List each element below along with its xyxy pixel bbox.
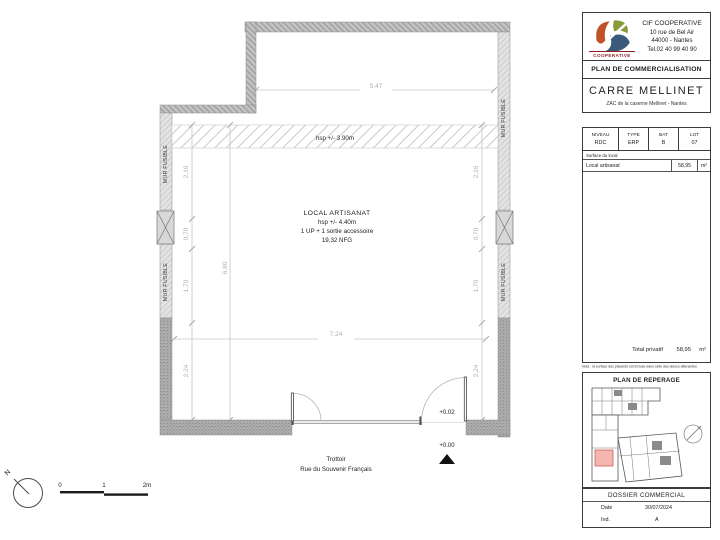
company-address-2: 44000 - Nantes (635, 37, 709, 46)
project-name: CARRE MELLINET (583, 85, 710, 97)
key-plan-highlight (595, 450, 613, 466)
logo-caption: COOPERATIVE (589, 51, 635, 58)
location-plan-title: PLAN DE REPERAGE (583, 377, 710, 384)
dim-left-2: 0,70 (183, 227, 190, 240)
total-row: Total privatif 58,95 m² (583, 347, 710, 357)
niveau-value: RDC (595, 140, 607, 146)
scale-0: 0 (58, 482, 62, 489)
wall-left-lower (160, 318, 172, 420)
company-phone: Tel.02 40 99 40 90 (635, 46, 709, 55)
level-outside: +0.00 (439, 443, 455, 449)
surface-row-value: 58,95 (671, 160, 698, 171)
wall-top (245, 22, 510, 32)
level-inside: +0.02 (439, 410, 455, 416)
total-unit: m² (699, 347, 706, 353)
cell-niveau: NIVEAU RDC (583, 128, 619, 150)
surface-note: Nota : la surface des placards est inclu… (582, 365, 698, 368)
mur-fusible-label-right-top: MUR FUSIBLE (501, 99, 507, 137)
project-section: CARRE MELLINET ZAC de la caserne Melline… (583, 85, 710, 107)
cell-type: TYPE ERP (619, 128, 649, 150)
dim-left-4: 2,24 (183, 364, 190, 377)
bat-value: B (662, 140, 666, 146)
key-plan-north-icon (684, 425, 702, 443)
floor-plan-drawing: hsp +/- 3.90m 2,16 0,70 1,70 2,24 2,16 (0, 0, 578, 540)
mur-fusible-label-left-top: MUR FUSIBLE (163, 145, 169, 183)
wall-bottom-right (466, 420, 510, 435)
wall-right-lower (498, 318, 510, 437)
dim-right-3: 1,70 (473, 279, 480, 292)
storefront (291, 377, 466, 425)
surface-row-unit: m² (698, 163, 710, 169)
ind-label: Ind. (601, 517, 610, 523)
cell-lot: LOT 07 (679, 128, 710, 150)
door-leaf-main (464, 377, 466, 421)
title-block-header: COOPERATIVE CIF COOPERATIVE 10 rue de Be… (582, 12, 711, 113)
bat-label: BAT (659, 133, 668, 138)
street-label-2: Rue du Souvenir Français (300, 466, 372, 473)
type-label: TYPE (627, 133, 640, 138)
room-access: 1 UP + 1 sortie accessoire (301, 228, 374, 235)
door-swing-small (294, 394, 322, 422)
total-label: Total privatif (632, 347, 663, 353)
wall-upper-left (160, 105, 256, 113)
room-ceiling-height: hsp +/- 4.40m (318, 219, 356, 226)
project-location: ZAC de la caserne Mellinet - Nantes (583, 101, 710, 107)
wall-bottom-left (160, 420, 292, 435)
surface-header: Surface du local (583, 151, 710, 160)
wall-step (246, 22, 256, 113)
dim-top: 5,47 (370, 83, 383, 90)
north-label: N (4, 469, 13, 478)
scale-bar: 0 1 2m (58, 482, 151, 496)
dim-right-1: 2,16 (473, 165, 480, 178)
dim-right-2: 0,70 (473, 227, 480, 240)
dossier-title: DOSSIER COMMERCIAL (583, 489, 710, 502)
dim-left-3: 1,70 (183, 279, 190, 292)
location-plan-box: PLAN DE REPERAGE (582, 372, 711, 488)
dim-height-total: 6,80 (222, 261, 229, 274)
north-compass-icon (14, 479, 43, 508)
dossier-box: DOSSIER COMMERCIAL Date 30/07/2024 Ind. … (582, 488, 711, 528)
surface-row: Local artisanat 58,95 m² (583, 160, 710, 172)
scale-2m: 2m (143, 482, 152, 489)
ind-value: A (655, 517, 659, 523)
cell-bat: BAT B (649, 128, 679, 150)
document-type: PLAN DE COMMERCIALISATION (583, 61, 710, 79)
surface-row-label: Local artisanat (583, 163, 671, 169)
lot-value: 07 (692, 140, 698, 146)
mur-fusible-label-right-bottom: MUR FUSIBLE (501, 263, 507, 301)
lot-label: LOT (690, 133, 699, 138)
date-label: Date (601, 505, 612, 511)
mur-fusible-label-left-bottom: MUR FUSIBLE (163, 263, 169, 301)
company-name: CIF COOPERATIVE (635, 19, 709, 29)
date-value: 30/07/2024 (645, 505, 672, 511)
type-value: ERP (628, 140, 639, 146)
dim-left-1: 2,16 (183, 165, 190, 178)
key-plan (586, 386, 708, 486)
door-leaf-small (291, 393, 293, 421)
dim-right-4: 2,24 (473, 364, 480, 377)
info-row: NIVEAU RDC TYPE ERP BAT B LOT 07 (583, 128, 710, 151)
street-label-1: Trottoir (326, 456, 345, 463)
niveau-label: NIVEAU (592, 133, 610, 138)
company-section: COOPERATIVE CIF COOPERATIVE 10 rue de Be… (583, 13, 710, 61)
room-name: LOCAL ARTISANAT (303, 210, 370, 217)
surface-table: NIVEAU RDC TYPE ERP BAT B LOT 07 Surface… (582, 127, 711, 363)
dim-width: 7,24 (330, 331, 343, 338)
dossier-date-row: Date 30/07/2024 (583, 502, 710, 514)
company-address-1: 10 rue de Bel Air (635, 29, 709, 38)
scale-1: 1 (102, 482, 106, 489)
band-height-label: hsp +/- 3.90m (316, 135, 354, 142)
company-info: CIF COOPERATIVE 10 rue de Bel Air 44000 … (635, 19, 709, 55)
entrance-arrow-icon (439, 454, 455, 464)
total-value: 58,95 (676, 347, 691, 353)
room-nfg: 19,32 NFG (322, 237, 352, 244)
plan-sheet: hsp +/- 3.90m 2,16 0,70 1,70 2,24 2,16 (0, 0, 720, 540)
room-label: LOCAL ARTISANAT hsp +/- 4.40m 1 UP + 1 s… (301, 210, 374, 244)
dossier-ind-row: Ind. A (583, 514, 710, 526)
